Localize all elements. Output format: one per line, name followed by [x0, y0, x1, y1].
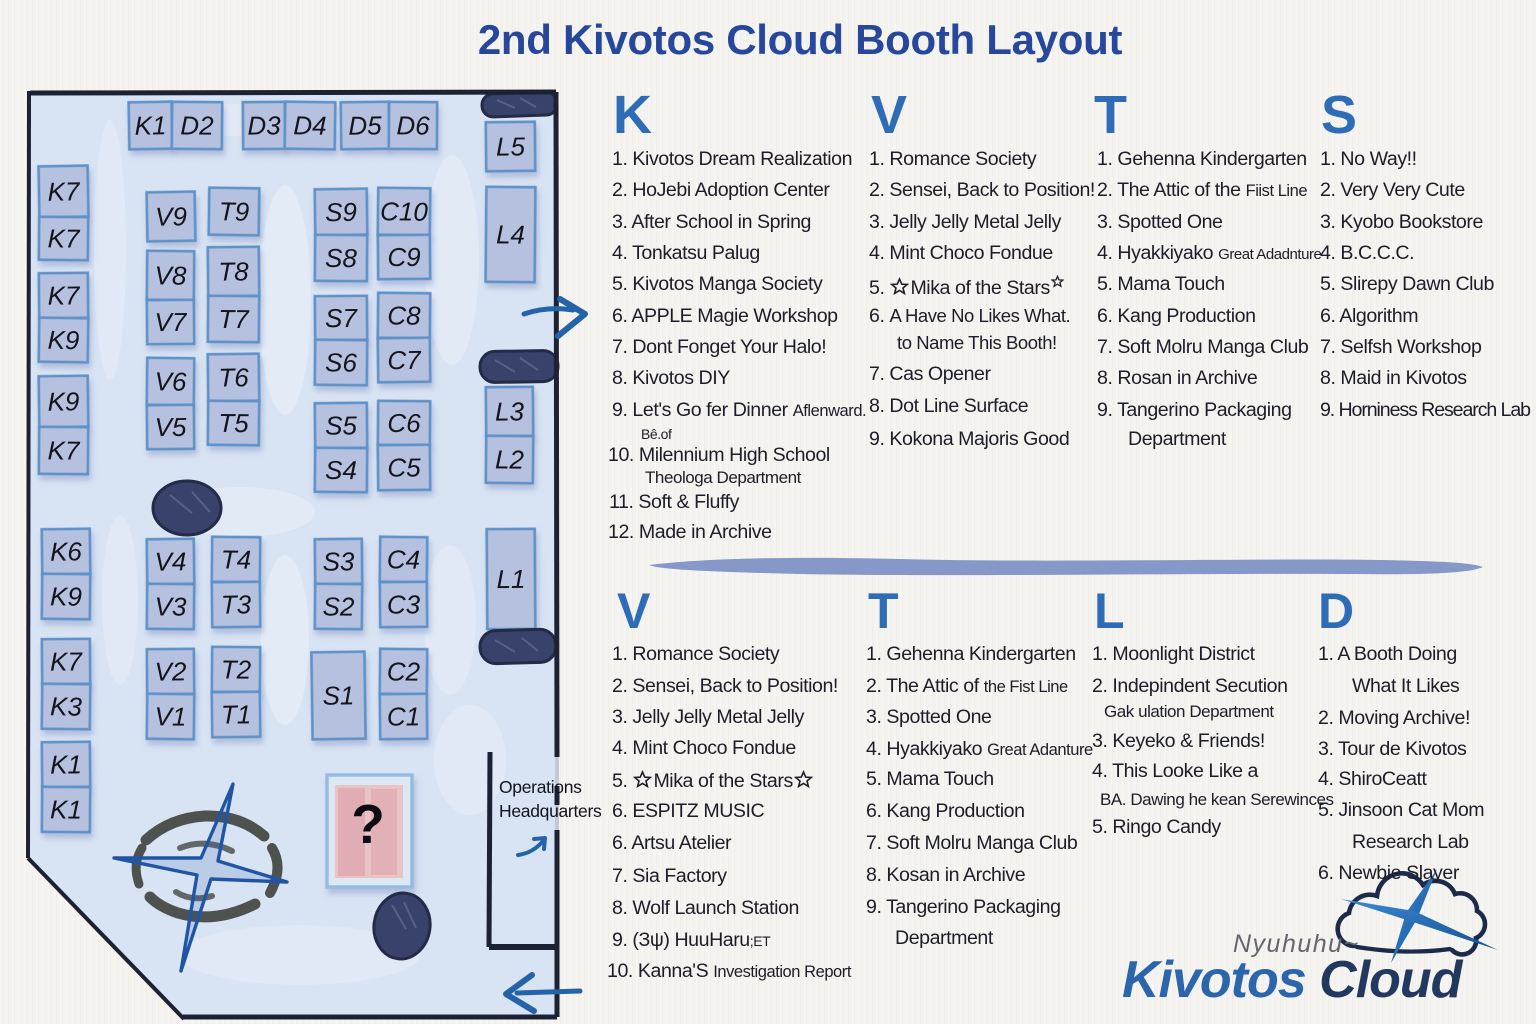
svg-text:T5: T5	[218, 408, 249, 438]
svg-text:C4: C4	[387, 544, 421, 574]
svg-text:L3: L3	[495, 396, 525, 426]
svg-text:D6: D6	[396, 110, 430, 140]
svg-text:S7: S7	[325, 303, 359, 333]
svg-text:V7: V7	[154, 307, 188, 337]
svg-text:T3: T3	[221, 589, 252, 619]
svg-text:C3: C3	[387, 589, 421, 619]
svg-text:K1: K1	[134, 110, 166, 141]
svg-text:T2: T2	[221, 654, 252, 684]
svg-text:V1: V1	[154, 701, 186, 731]
svg-text:C6: C6	[387, 408, 421, 438]
svg-text:K9: K9	[47, 386, 79, 416]
svg-text:S6: S6	[325, 347, 358, 377]
svg-text:C1: C1	[387, 701, 421, 731]
svg-text:V9: V9	[155, 201, 187, 232]
svg-text:?: ?	[351, 793, 385, 855]
svg-text:S9: S9	[325, 197, 357, 227]
svg-text:S1: S1	[322, 680, 354, 710]
svg-text:L1: L1	[496, 564, 525, 594]
svg-text:L4: L4	[496, 219, 525, 249]
svg-text:V6: V6	[154, 366, 187, 396]
svg-text:V4: V4	[154, 546, 186, 576]
svg-text:D5: D5	[348, 110, 382, 140]
svg-text:T8: T8	[218, 256, 249, 286]
svg-text:K1: K1	[50, 749, 82, 779]
svg-text:K1: K1	[50, 794, 82, 824]
svg-text:S4: S4	[325, 455, 357, 485]
svg-text:T4: T4	[221, 544, 252, 574]
svg-text:S5: S5	[325, 410, 358, 440]
svg-text:S3: S3	[322, 546, 355, 576]
svg-text:C2: C2	[387, 656, 421, 686]
svg-text:S2: S2	[322, 591, 355, 621]
svg-text:T1: T1	[221, 699, 252, 729]
svg-text:V8: V8	[154, 260, 187, 290]
svg-text:D3: D3	[247, 110, 281, 140]
svg-text:C5: C5	[387, 452, 421, 482]
svg-text:L5: L5	[496, 131, 526, 161]
svg-text:T6: T6	[218, 362, 249, 392]
svg-text:T9: T9	[219, 196, 250, 226]
svg-text:V5: V5	[154, 412, 187, 442]
svg-text:K7: K7	[47, 280, 81, 310]
svg-text:K9: K9	[50, 581, 82, 611]
svg-text:K3: K3	[50, 691, 83, 721]
svg-text:K7: K7	[47, 223, 81, 253]
svg-text:K7: K7	[50, 646, 84, 676]
svg-text:V2: V2	[154, 656, 187, 686]
svg-text:V3: V3	[154, 591, 187, 621]
svg-text:K6: K6	[50, 536, 83, 566]
svg-text:C8: C8	[387, 300, 421, 330]
svg-text:S8: S8	[325, 243, 358, 273]
svg-text:K7: K7	[47, 435, 81, 465]
svg-text:C7: C7	[387, 345, 422, 375]
svg-text:K9: K9	[47, 325, 79, 355]
svg-text:D2: D2	[180, 110, 214, 140]
svg-text:T7: T7	[218, 304, 250, 334]
svg-text:K7: K7	[47, 176, 81, 207]
svg-text:C10: C10	[380, 196, 429, 227]
svg-text:L2: L2	[495, 444, 525, 474]
svg-text:C9: C9	[387, 242, 421, 272]
svg-text:D4: D4	[293, 110, 327, 140]
